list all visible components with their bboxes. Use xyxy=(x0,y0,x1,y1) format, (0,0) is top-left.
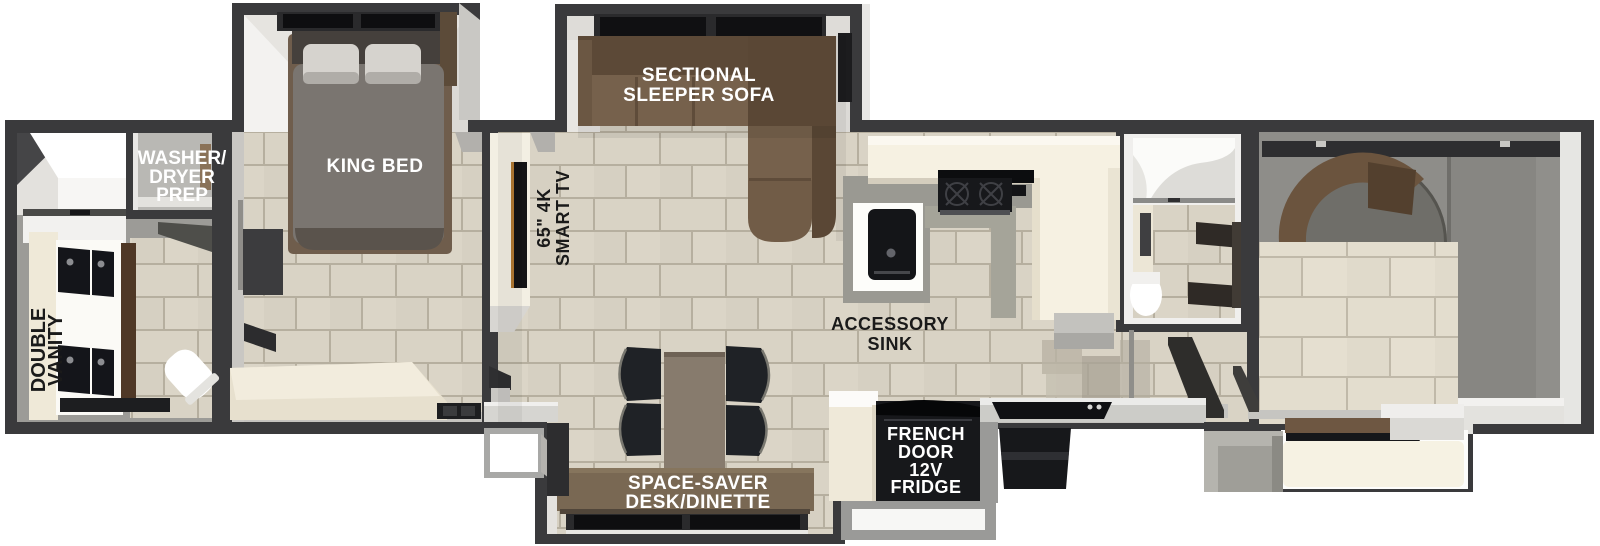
svg-text:SINK: SINK xyxy=(867,334,912,354)
svg-text:SECTIONAL: SECTIONAL xyxy=(642,65,756,86)
svg-text:SPACE-SAVER: SPACE-SAVER xyxy=(628,473,768,494)
svg-text:DOOR: DOOR xyxy=(898,442,954,462)
svg-text:DESK/DINETTE: DESK/DINETTE xyxy=(625,492,770,513)
svg-text:65" 4K: 65" 4K xyxy=(534,188,554,248)
svg-text:PREP: PREP xyxy=(156,185,208,206)
svg-text:FRIDGE: FRIDGE xyxy=(890,477,961,497)
svg-text:VANITY: VANITY xyxy=(45,313,67,386)
svg-text:SMART TV: SMART TV xyxy=(553,170,573,266)
svg-text:KING BED: KING BED xyxy=(327,156,424,177)
svg-text:SLEEPER SOFA: SLEEPER SOFA xyxy=(623,85,775,106)
svg-text:WASHER/: WASHER/ xyxy=(138,148,227,169)
svg-text:FRENCH: FRENCH xyxy=(887,424,965,444)
svg-text:ACCESSORY: ACCESSORY xyxy=(831,314,949,334)
